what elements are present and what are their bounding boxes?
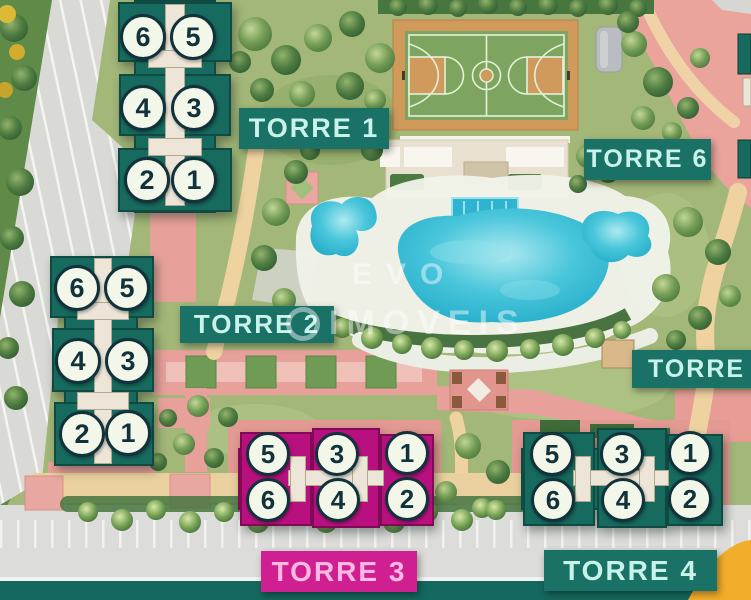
torre-3-unit-1[interactable]: 1: [385, 431, 429, 475]
torre-2-unit-3[interactable]: 3: [105, 338, 151, 384]
torre-4-unit-6[interactable]: 6: [531, 478, 575, 522]
torre-5-label[interactable]: TORRE: [632, 350, 751, 388]
torre-3-building[interactable]: 5 3 1 6 4 2: [238, 426, 434, 530]
torre-2-unit-6[interactable]: 6: [54, 265, 100, 311]
torre-4-unit-1[interactable]: 1: [668, 431, 712, 475]
torre-3-unit-5[interactable]: 5: [246, 432, 290, 476]
torre-4-unit-2[interactable]: 2: [668, 477, 712, 521]
torre-2-unit-5[interactable]: 5: [104, 265, 150, 311]
torre-3-core: [290, 456, 306, 502]
torre-1-unit-3[interactable]: 3: [171, 85, 217, 131]
torre-2-label[interactable]: TORRE 2: [180, 306, 334, 343]
site-plan: 6 5 4 3 2 1 6 5 4 3 2 1 5 3 1 6 4 2: [0, 0, 751, 600]
torre-4-label[interactable]: TORRE 4: [544, 550, 717, 591]
torre-1-unit-1[interactable]: 1: [171, 157, 217, 203]
torre-1-label[interactable]: TORRE 1: [239, 108, 389, 149]
torre-1-core: [148, 138, 202, 156]
torre-2-unit-1[interactable]: 1: [105, 410, 151, 456]
torre-1-building[interactable]: 6 5 4 3 2 1: [118, 0, 232, 215]
torre-1-unit-4[interactable]: 4: [120, 85, 166, 131]
torre-3-unit-4[interactable]: 4: [316, 478, 360, 522]
torre-2-core: [77, 392, 129, 410]
torre-3-unit-3[interactable]: 3: [315, 432, 359, 476]
utility-building: [596, 27, 622, 72]
torre-4-unit-4[interactable]: 4: [601, 478, 645, 522]
torre-1-unit-5[interactable]: 5: [170, 14, 216, 60]
torre-4-core: [575, 456, 591, 502]
torre-4-building[interactable]: 5 3 1 6 4 2: [521, 426, 723, 530]
torre-3-unit-2[interactable]: 2: [385, 477, 429, 521]
torre-2-unit-2[interactable]: 2: [59, 411, 105, 457]
torre-4-unit-3[interactable]: 3: [600, 432, 644, 476]
torre-1-unit-6[interactable]: 6: [120, 14, 166, 60]
torre-3-unit-6[interactable]: 6: [246, 478, 290, 522]
torre-1-unit-2[interactable]: 2: [124, 157, 170, 203]
torre-3-label[interactable]: TORRE 3: [261, 551, 417, 592]
torre-2-building[interactable]: 6 5 4 3 2 1: [50, 256, 154, 466]
torre-2-unit-4[interactable]: 4: [55, 338, 101, 384]
torre-4-unit-5[interactable]: 5: [530, 432, 574, 476]
torre-6-label[interactable]: TORRE 6: [584, 139, 711, 180]
